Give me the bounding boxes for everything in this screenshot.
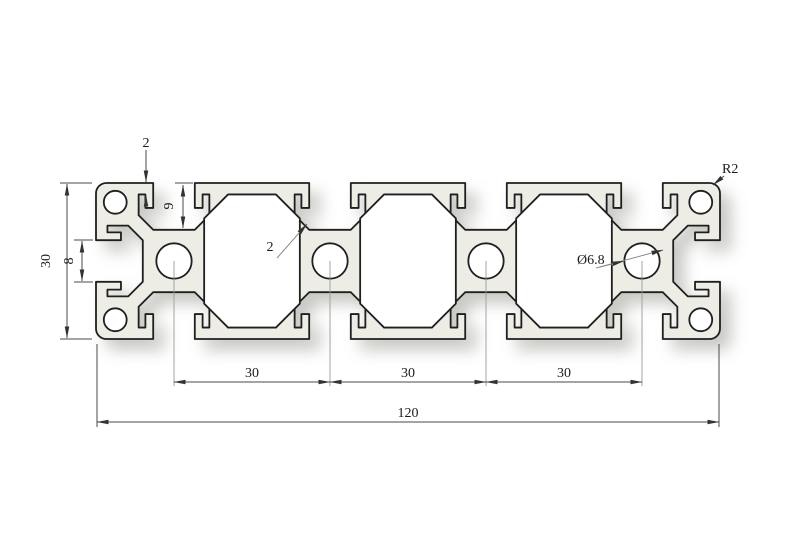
dim-label-overall-height: 30 xyxy=(39,254,54,268)
technical-drawing-svg: 30 8 2 9 2 Ø6.8 R2 30 30 xyxy=(0,0,804,557)
dim-label-overall-width: 120 xyxy=(398,406,419,421)
dim-label-pitch-1: 30 xyxy=(245,366,259,381)
dim-label-slot-depth: 9 xyxy=(162,203,177,210)
corner-hole-top-right xyxy=(689,191,712,214)
cavity-octagon-1 xyxy=(204,194,300,327)
dim-overall-width: 120 xyxy=(97,344,719,427)
dim-label-web-thickness: 2 xyxy=(267,240,274,255)
dim-slot-depth: 9 xyxy=(162,183,193,228)
corner-hole-bottom-right xyxy=(689,308,712,331)
dim-label-corner-radius: R2 xyxy=(722,162,738,177)
dim-label-slot-opening: 8 xyxy=(62,258,77,265)
drawing-canvas: 30 8 2 9 2 Ø6.8 R2 30 30 xyxy=(0,0,804,557)
dim-label-pitch-3: 30 xyxy=(557,366,571,381)
dim-label-flange-thickness: 2 xyxy=(143,136,150,151)
corner-hole-top-left xyxy=(104,191,127,214)
dim-label-pitch-2: 30 xyxy=(401,366,415,381)
dim-hole-pitch-chain: 30 30 30 xyxy=(174,366,642,382)
dim-label-center-hole-diameter: Ø6.8 xyxy=(577,253,605,268)
profile-cross-section xyxy=(96,183,720,339)
dim-corner-radius: R2 xyxy=(713,162,738,185)
cavity-octagon-2 xyxy=(360,194,456,327)
corner-hole-bottom-left xyxy=(104,308,127,331)
